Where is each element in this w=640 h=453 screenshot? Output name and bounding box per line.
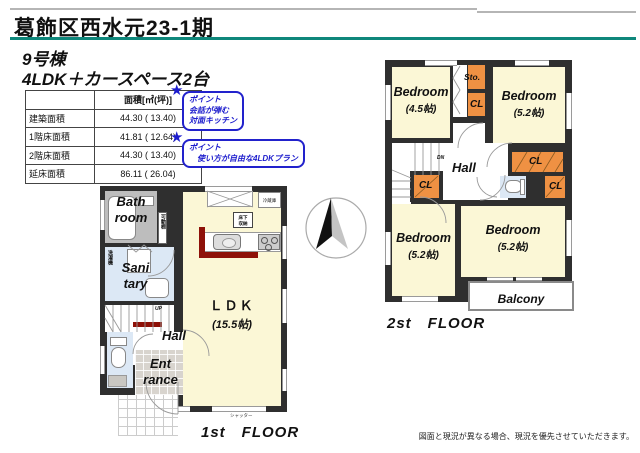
- closet-label: CL: [470, 100, 483, 110]
- bath-line: Bath: [105, 194, 157, 210]
- movable-shelf-box: 可動棚: [158, 212, 167, 244]
- bathroom-label: Bath room: [105, 194, 157, 226]
- balcony: Balcony: [468, 281, 574, 311]
- door-bay: [453, 123, 485, 148]
- table-row: 2階床面積 44.30 ( 13.40): [26, 146, 202, 165]
- bedroom-size: (5.2帖): [493, 104, 565, 119]
- dn-label: DN: [437, 155, 444, 161]
- refrigerator-label: 冷蔵庫: [259, 198, 280, 204]
- table-row: 延床面積 86.11 ( 26.04): [26, 165, 202, 184]
- refrigerator-box: 冷蔵庫: [258, 192, 281, 208]
- underfloor-storage-box: 床下 収納: [233, 212, 253, 228]
- bedroom4-label: Bedroom (5.2帖): [461, 222, 565, 253]
- shutter-window: [212, 406, 266, 412]
- row-label: 延床面積: [26, 165, 95, 184]
- toilet-vanity: [108, 375, 127, 387]
- row-label: 建築面積: [26, 109, 95, 128]
- floor1-caption: 1st FLOOR: [201, 421, 299, 442]
- title-underline: [10, 37, 636, 40]
- sanitary-line: tary: [108, 276, 163, 292]
- row-value: 86.11 ( 26.04): [95, 165, 202, 184]
- burner: [261, 237, 268, 244]
- counter-edge-horizontal: [199, 252, 258, 258]
- point-title: ポイント: [189, 95, 237, 106]
- bedroom-name: Bedroom: [493, 88, 565, 104]
- bath-line: room: [105, 210, 157, 226]
- shutter-label: シャッター: [230, 413, 253, 419]
- table-row: 建築面積 44.30 ( 13.40): [26, 109, 202, 128]
- flyer-page: 葛飾区西水元23-1期 9号棟 4LDK＋カースペース2台 面積[㎡(坪)] 建…: [0, 0, 640, 453]
- window: [566, 220, 572, 256]
- point-callout-1: ポイント 会話が弾む 対面キッチン: [182, 91, 244, 131]
- closet-label: CL: [529, 157, 542, 167]
- window: [282, 289, 287, 323]
- point-title: ポイント: [189, 143, 298, 154]
- toilet-tank: [520, 179, 525, 195]
- window: [385, 232, 391, 265]
- row-label: 1階床面積: [26, 128, 95, 147]
- staircase-area: [392, 143, 411, 204]
- star-icon: ★: [170, 131, 183, 145]
- disclaimer-text: 図面と現況が異なる場合、現況を優先させていただきます。: [419, 431, 634, 442]
- bedroom-size: (4.5帖): [392, 100, 450, 115]
- window: [425, 60, 457, 66]
- closet-label: CL: [419, 181, 432, 191]
- closet-label: CL: [549, 182, 562, 192]
- entrance-label: Ent rance: [138, 356, 183, 388]
- entrance-porch: [118, 395, 178, 436]
- toilet-tank: [110, 337, 127, 346]
- window: [282, 369, 287, 391]
- bedroom-size: (5.2帖): [461, 238, 565, 253]
- kitchen-cupboard: [207, 191, 253, 207]
- bedroom-size: (5.2帖): [392, 246, 455, 261]
- bedroom2-label: Bedroom (5.2帖): [493, 88, 565, 119]
- window: [515, 60, 549, 66]
- point-line: 会話が弾む: [189, 106, 237, 117]
- sanitary-label: Sani tary: [108, 260, 163, 292]
- point-callout-2: ポイント 使い方が自由な4LDKプラン: [182, 139, 305, 168]
- top-rule-left: [10, 8, 477, 10]
- bedroom-name: Bedroom: [461, 222, 565, 238]
- sanitary-line: Sani: [108, 260, 163, 276]
- top-rule-right: [477, 11, 636, 13]
- ldk-size-label: (15.5帖): [183, 316, 281, 332]
- up-label: UP: [155, 306, 162, 312]
- entrance-line: Ent: [138, 356, 183, 372]
- window: [282, 226, 287, 259]
- row-label: 2階床面積: [26, 146, 95, 165]
- ldk-label: ＬＤＫ: [183, 298, 281, 314]
- floor2-caption: 2st FLOOR: [387, 312, 485, 333]
- kitchen-stove: [258, 234, 280, 250]
- point-line: 使い方が自由な4LDKプラン: [189, 154, 298, 165]
- burner: [271, 237, 278, 244]
- window: [566, 93, 572, 129]
- window: [100, 346, 105, 374]
- bedroom-name: Bedroom: [392, 230, 455, 246]
- hall-label: Hall: [452, 160, 476, 176]
- underfloor-label: 収納: [234, 221, 252, 227]
- window: [402, 296, 438, 302]
- kitchen-sink: [213, 234, 241, 250]
- area-table-corner-cell: [26, 91, 95, 110]
- bedroom3-label: Bedroom (5.2帖): [392, 230, 455, 261]
- stair-handrail: [133, 322, 162, 327]
- entrance-line: rance: [138, 372, 183, 388]
- burner: [265, 244, 272, 251]
- sink-basin: [222, 238, 236, 248]
- floor2-plan: Bedroom (4.5帖) Bedroom (5.2帖) Bedroom (5…: [385, 60, 572, 302]
- movable-shelf-label: 可動棚: [159, 214, 166, 229]
- point-line: 対面キッチン: [189, 116, 237, 127]
- balcony-label: Balcony: [470, 291, 572, 307]
- toilet-bowl: [111, 347, 126, 368]
- storage-label: Sto.: [464, 72, 480, 82]
- floor1-plan: 冷蔵庫 床下 収納 可動棚: [100, 186, 287, 412]
- compass-north-icon: [303, 192, 371, 264]
- bedroom1-label: Bedroom (4.5帖): [392, 84, 450, 115]
- bedroom-name: Bedroom: [392, 84, 450, 100]
- window: [385, 85, 391, 120]
